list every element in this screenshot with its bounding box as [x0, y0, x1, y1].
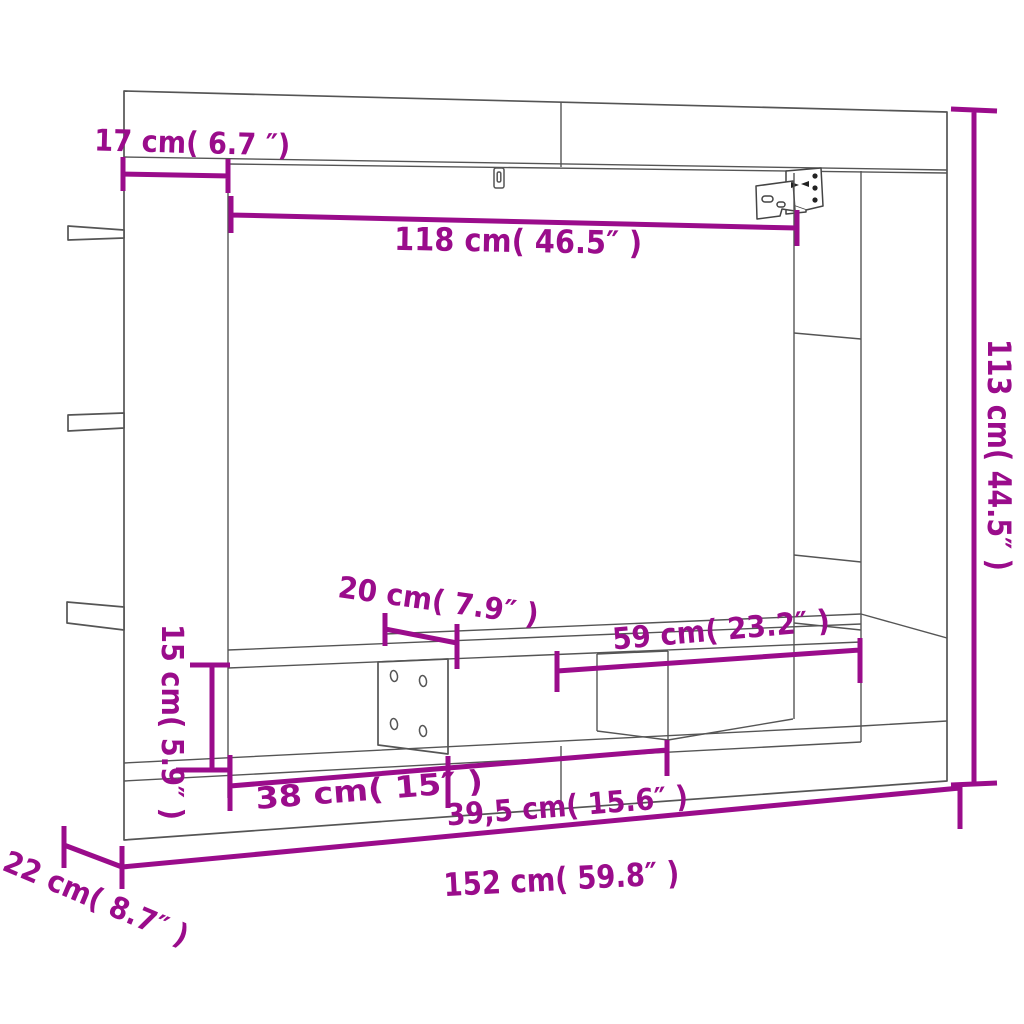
dimension-label-118cm: 118 cm( 46.5″ )	[394, 220, 643, 262]
divider-plate	[378, 659, 448, 754]
dimension-label-15cm: 15 cm( 5.9″ )	[154, 624, 189, 820]
dimension-diagram-page: 17 cm( 6.7 ″) 118 cm( 46.5″ ) 113 cm( 44…	[0, 0, 1024, 1024]
left-shelf-middle	[68, 413, 124, 431]
tv-wall-unit-diagram: 17 cm( 6.7 ″) 118 cm( 46.5″ ) 113 cm( 44…	[0, 0, 1024, 1024]
dimension-label-113cm: 113 cm( 44.5″ )	[980, 339, 1018, 571]
dimension-label-17cm: 17 cm( 6.7 ″)	[94, 123, 291, 163]
